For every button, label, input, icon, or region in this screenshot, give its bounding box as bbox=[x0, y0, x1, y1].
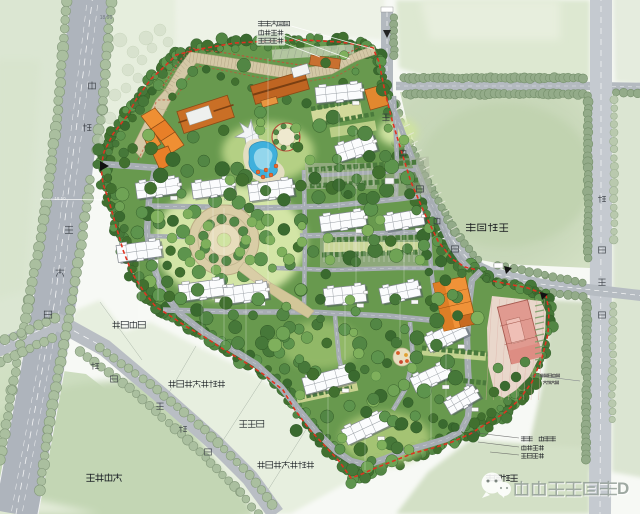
svg-text:18.50: 18.50 bbox=[54, 196, 66, 201]
svg-text:18.96: 18.96 bbox=[100, 15, 113, 21]
svg-text:D: D bbox=[617, 479, 629, 498]
